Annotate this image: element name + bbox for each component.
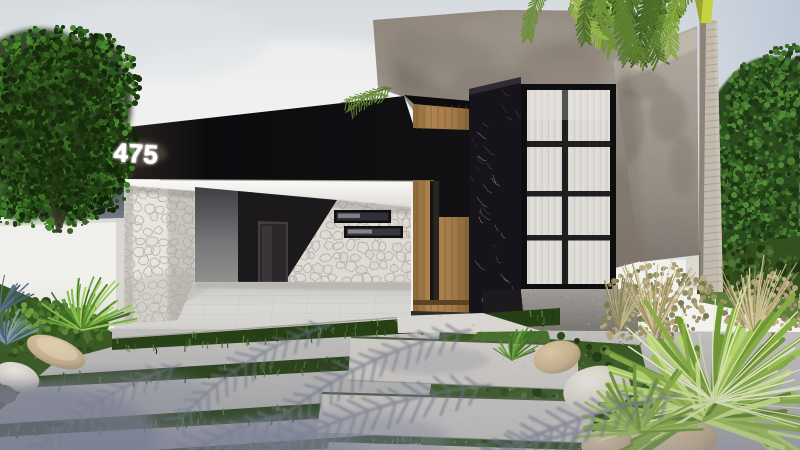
svg-text:475: 475 — [113, 137, 160, 170]
